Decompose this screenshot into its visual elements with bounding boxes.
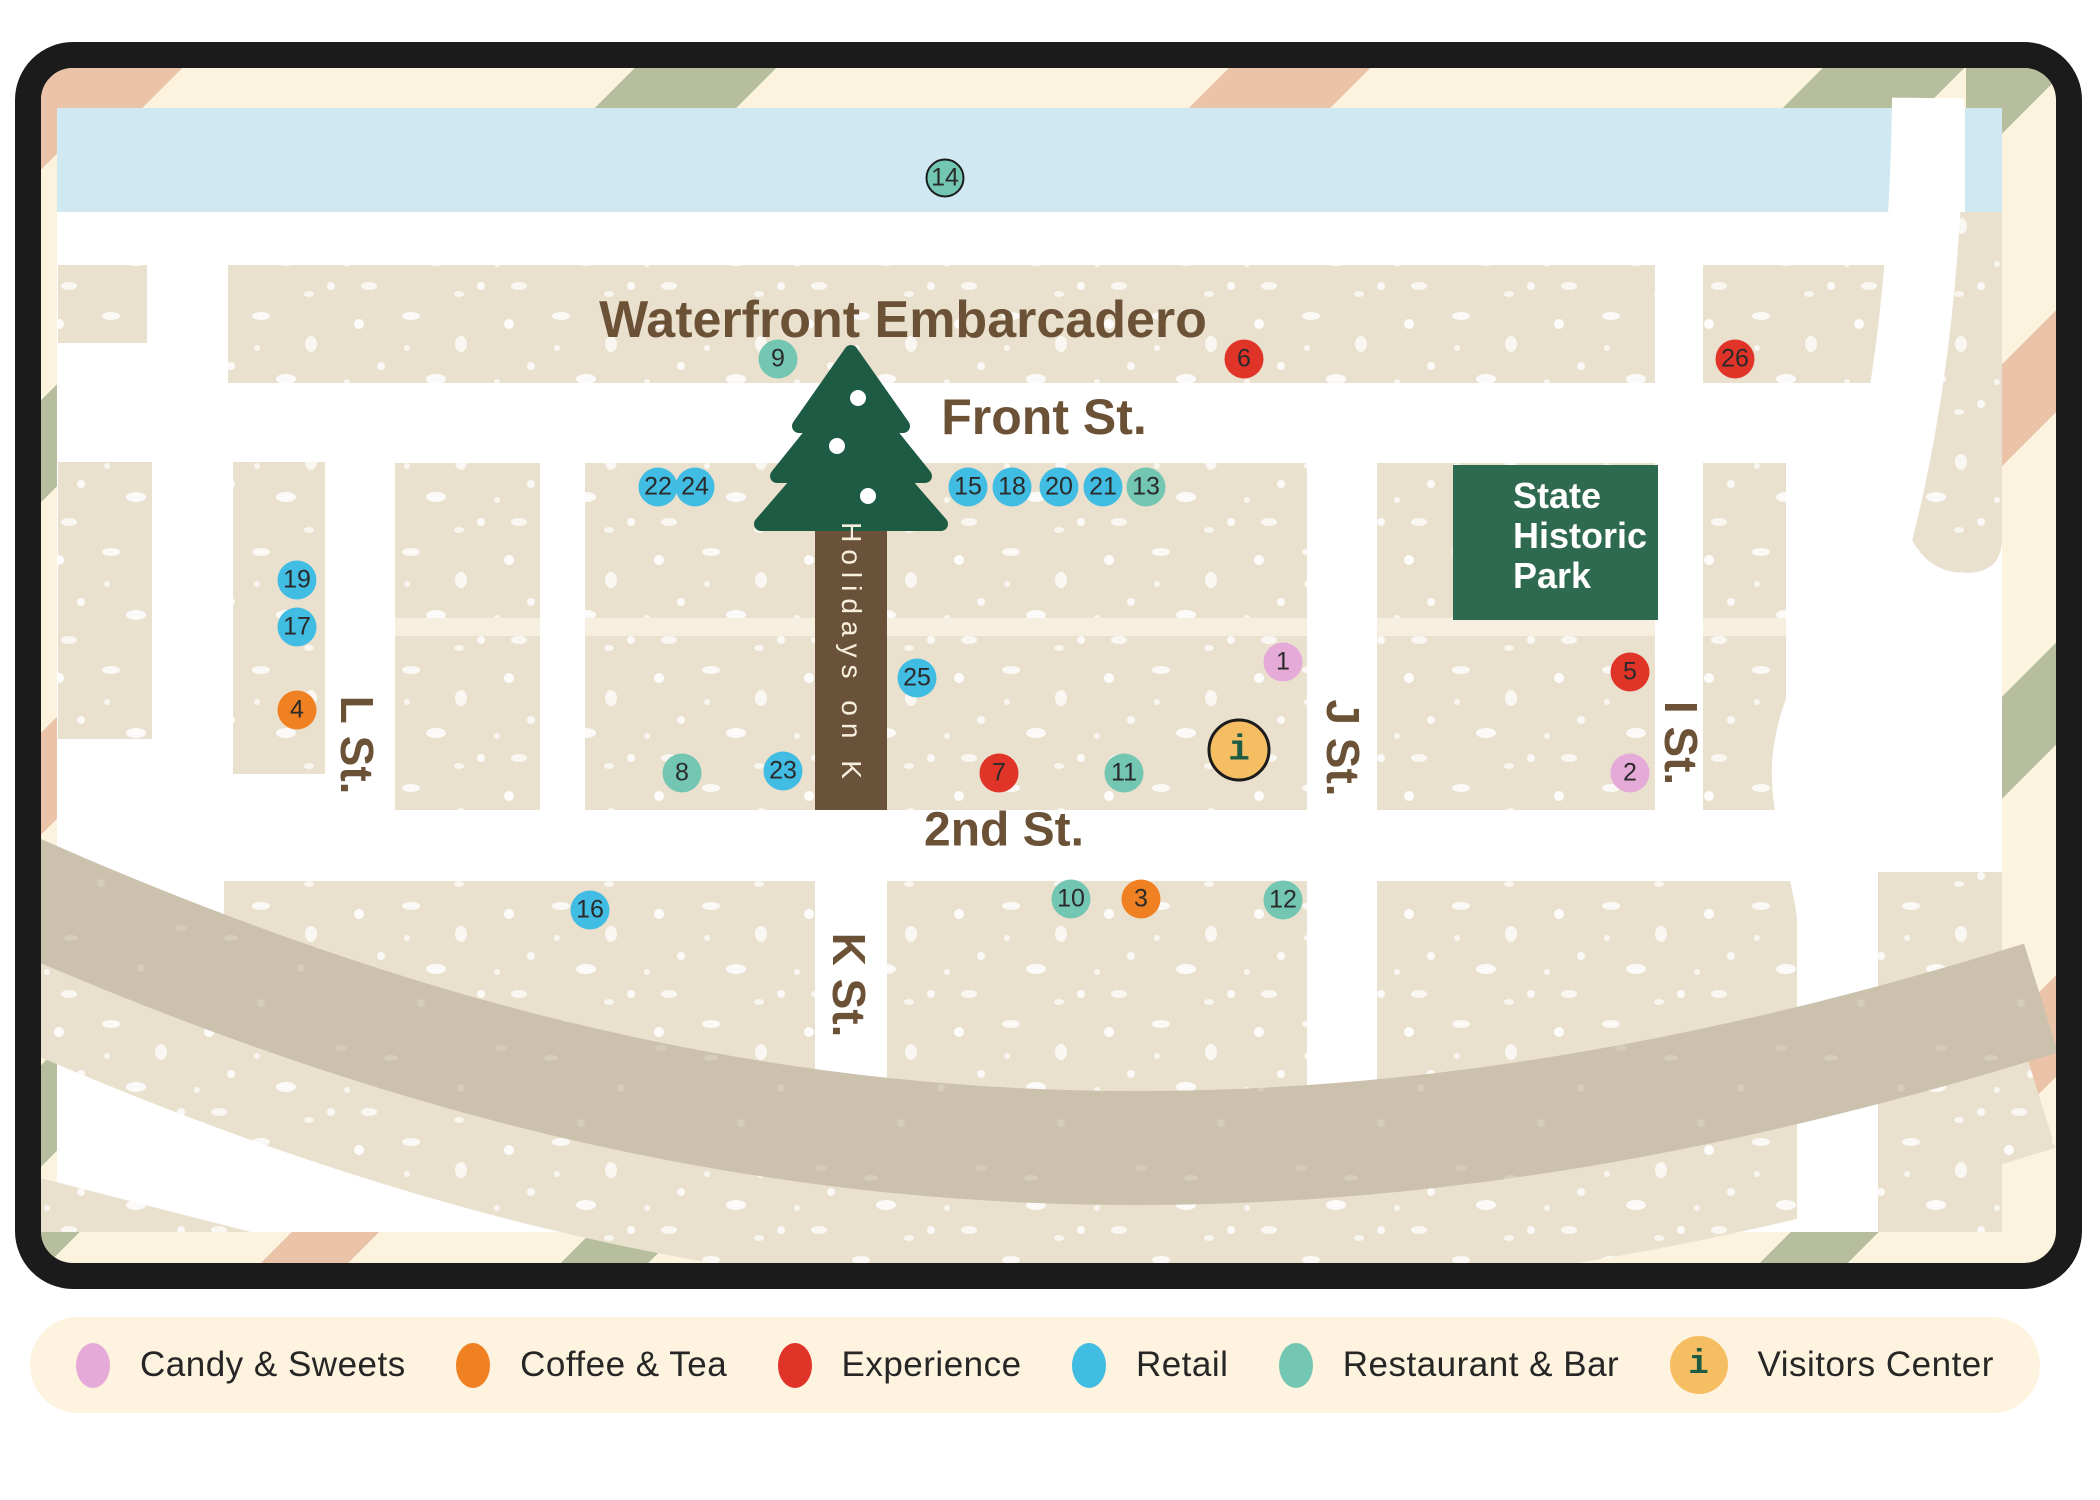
legend-row: Candy & SweetsCoffee & TeaExperienceReta… — [76, 1336, 1994, 1394]
map-marker-1[interactable]: 1 — [1264, 643, 1303, 682]
legend-label: Restaurant & Bar — [1343, 1345, 1619, 1385]
park-line-1: State — [1513, 476, 1647, 516]
map-marker-7[interactable]: 7 — [980, 754, 1019, 793]
legend-label: Visitors Center — [1758, 1345, 1994, 1385]
map-overlay: Waterfront Embarcadero Front St. 2nd St.… — [41, 68, 2056, 1263]
legend-item-candy: Candy & Sweets — [76, 1343, 406, 1388]
legend-label: Experience — [842, 1345, 1022, 1385]
map-marker-18[interactable]: 18 — [993, 468, 1032, 507]
map-marker-6[interactable]: 6 — [1225, 340, 1264, 379]
legend-bar: Candy & SweetsCoffee & TeaExperienceReta… — [30, 1317, 2040, 1413]
map-marker-16[interactable]: 16 — [571, 891, 610, 930]
legend-label: Retail — [1136, 1345, 1228, 1385]
map-marker-24[interactable]: 24 — [676, 468, 715, 507]
legend-item-coffee: Coffee & Tea — [456, 1343, 727, 1388]
visitors-center-marker[interactable]: i — [1208, 719, 1271, 782]
experience-legend-dot — [778, 1343, 812, 1388]
holiday-map-page: Waterfront Embarcadero Front St. 2nd St.… — [0, 0, 2100, 1500]
legend-item-visitors: iVisitors Center — [1670, 1336, 1994, 1394]
legend-item-experience: Experience — [778, 1343, 1022, 1388]
legend-item-restaurant: Restaurant & Bar — [1279, 1343, 1619, 1388]
map-marker-5[interactable]: 5 — [1611, 653, 1650, 692]
street-label-i: I St. — [1654, 701, 1708, 785]
map-marker-11[interactable]: 11 — [1105, 754, 1144, 793]
map-marker-13[interactable]: 13 — [1127, 468, 1166, 507]
legend-label: Candy & Sweets — [140, 1345, 406, 1385]
map-marker-21[interactable]: 21 — [1084, 468, 1123, 507]
map-marker-17[interactable]: 17 — [278, 608, 317, 647]
map-marker-19[interactable]: 19 — [278, 561, 317, 600]
legend-label: Coffee & Tea — [520, 1345, 727, 1385]
street-label-j: J St. — [1316, 699, 1370, 796]
map-marker-2[interactable]: 2 — [1611, 754, 1650, 793]
map-marker-10[interactable]: 10 — [1052, 880, 1091, 919]
visitors-center-legend-icon: i — [1670, 1336, 1728, 1394]
street-label-2nd: 2nd St. — [924, 803, 1084, 858]
map-marker-4[interactable]: 4 — [278, 691, 317, 730]
retail-legend-dot — [1072, 1343, 1106, 1388]
map-marker-12[interactable]: 12 — [1264, 881, 1303, 920]
state-historic-park-label: State Historic Park — [1513, 476, 1647, 596]
street-label-l: L St. — [330, 696, 384, 795]
map-marker-26[interactable]: 26 — [1716, 340, 1755, 379]
street-label-front: Front St. — [941, 388, 1147, 446]
map-marker-8[interactable]: 8 — [663, 754, 702, 793]
park-line-2: Historic — [1513, 516, 1647, 556]
map-marker-25[interactable]: 25 — [898, 659, 937, 698]
map-title: Waterfront Embarcadero — [599, 290, 1207, 350]
candy-legend-dot — [76, 1343, 110, 1388]
park-line-3: Park — [1513, 556, 1647, 596]
coffee-legend-dot — [456, 1343, 490, 1388]
map-card: Waterfront Embarcadero Front St. 2nd St.… — [15, 42, 2082, 1289]
restaurant-legend-dot — [1279, 1343, 1313, 1388]
map-marker-9[interactable]: 9 — [759, 340, 798, 379]
legend-item-retail: Retail — [1072, 1343, 1228, 1388]
map-marker-15[interactable]: 15 — [949, 468, 988, 507]
street-label-k: K St. — [822, 933, 876, 1038]
map-marker-14[interactable]: 14 — [926, 159, 965, 198]
map-marker-23[interactable]: 23 — [764, 752, 803, 791]
map-marker-20[interactable]: 20 — [1040, 468, 1079, 507]
holidays-on-k-label: Holidays on K — [835, 522, 867, 786]
map-marker-3[interactable]: 3 — [1122, 880, 1161, 919]
map-marker-22[interactable]: 22 — [639, 468, 678, 507]
